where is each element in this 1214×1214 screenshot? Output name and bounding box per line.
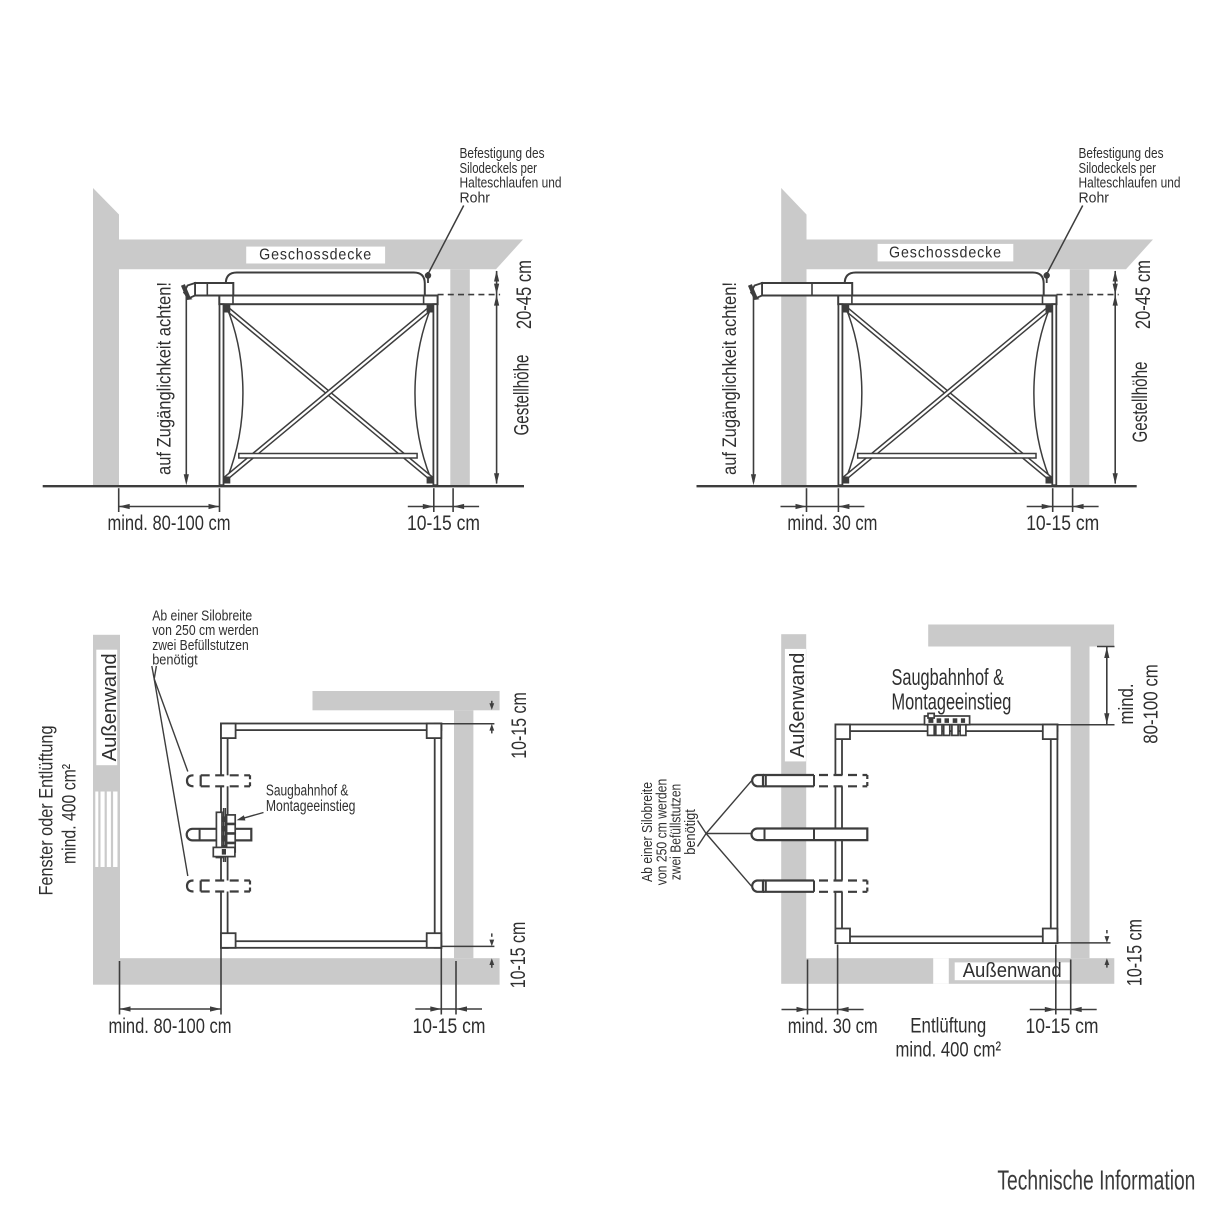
svg-text:mind. 400 cm²: mind. 400 cm²: [59, 764, 81, 864]
svg-text:auf Zugänglichkeit achten!: auf Zugänglichkeit achten!: [154, 282, 176, 475]
svg-text:10-15 cm: 10-15 cm: [1026, 512, 1099, 535]
svg-text:mind. 400 cm²: mind. 400 cm²: [896, 1037, 1002, 1061]
svg-text:Gestellhöhe: Gestellhöhe: [1129, 362, 1152, 443]
svg-text:auf Zugänglichkeit achten!: auf Zugänglichkeit achten!: [719, 282, 741, 475]
svg-text:10-15 cm: 10-15 cm: [413, 1015, 486, 1038]
svg-text:10-15 cm: 10-15 cm: [507, 922, 530, 989]
svg-text:Geschossdecke: Geschossdecke: [259, 247, 372, 264]
svg-text:benötigt: benötigt: [152, 652, 198, 669]
svg-text:mind. 80-100 cm: mind. 80-100 cm: [109, 1015, 232, 1038]
svg-text:Gestellhöhe: Gestellhöhe: [510, 355, 533, 436]
svg-text:Fenster oder Entlüftung: Fenster oder Entlüftung: [36, 726, 58, 896]
svg-text:Technische Information: Technische Information: [997, 1165, 1195, 1196]
svg-text:Außenwand: Außenwand: [963, 960, 1062, 982]
svg-text:20-45 cm: 20-45 cm: [513, 260, 536, 329]
svg-text:Außenwand: Außenwand: [98, 653, 121, 761]
svg-text:mind. 30 cm: mind. 30 cm: [787, 512, 877, 535]
svg-text:mind. 80-100 cm: mind. 80-100 cm: [108, 512, 231, 535]
svg-text:mind. 30 cm: mind. 30 cm: [788, 1015, 878, 1038]
svg-text:20-45 cm: 20-45 cm: [1132, 260, 1155, 329]
svg-text:mind.: mind.: [1115, 684, 1138, 725]
svg-text:Montageeinstieg: Montageeinstieg: [892, 689, 1012, 715]
svg-text:benötigt: benötigt: [682, 809, 699, 855]
svg-text:10-15 cm: 10-15 cm: [407, 512, 480, 535]
svg-text:Außenwand: Außenwand: [786, 653, 809, 758]
svg-text:Rohr: Rohr: [460, 189, 491, 206]
svg-text:80-100 cm: 80-100 cm: [1140, 664, 1163, 744]
svg-text:10-15 cm: 10-15 cm: [508, 692, 531, 759]
svg-text:10-15 cm: 10-15 cm: [1124, 919, 1147, 986]
svg-text:Geschossdecke: Geschossdecke: [889, 244, 1002, 261]
svg-text:10-15 cm: 10-15 cm: [1026, 1015, 1099, 1038]
svg-text:Rohr: Rohr: [1079, 189, 1110, 206]
svg-text:Saugbahnhof &: Saugbahnhof &: [892, 664, 1005, 690]
svg-text:Entlüftung: Entlüftung: [910, 1014, 986, 1038]
svg-text:Montageeinstieg: Montageeinstieg: [266, 798, 356, 815]
